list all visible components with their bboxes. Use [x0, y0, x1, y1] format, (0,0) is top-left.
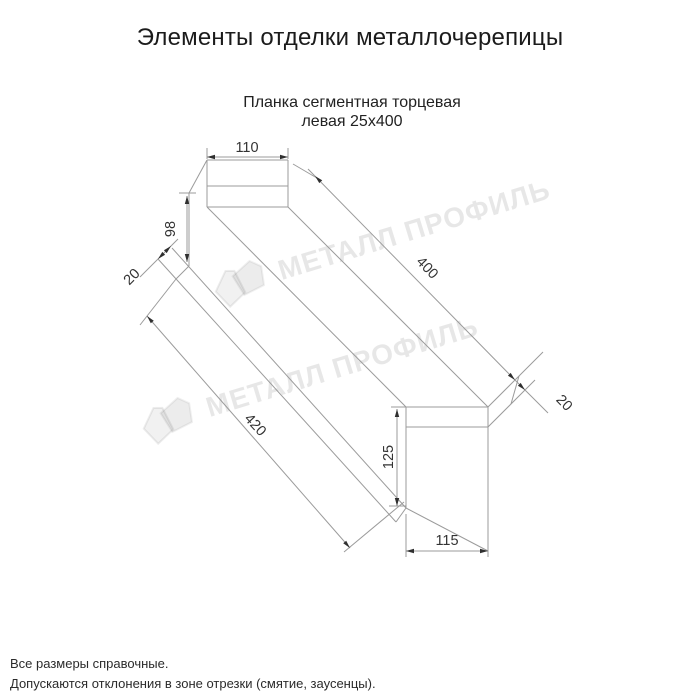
dimension-top-length: 400	[293, 164, 515, 380]
dim-label-top-length: 400	[413, 254, 441, 283]
dim-label-right-end-height: 125	[381, 445, 397, 469]
dimension-bottom-length: 420	[140, 279, 404, 552]
footer-note-2: Допускаются отклонения в зоне отрезки (с…	[10, 676, 376, 691]
dim-label-top-width: 110	[235, 140, 258, 156]
dimension-top-width: 110	[207, 140, 288, 159]
dim-label-left-fold: 20	[121, 266, 144, 289]
footer-note-1: Все размеры справочные.	[10, 656, 168, 671]
dimension-left-end-height: 98	[163, 193, 196, 262]
dimension-left-fold: 20	[121, 239, 178, 289]
dimension-right-fold: 20	[515, 380, 575, 415]
dim-label-bottom-length: 420	[241, 411, 269, 440]
dim-label-right-fold: 20	[553, 392, 576, 415]
dim-label-left-end-height: 98	[163, 221, 179, 237]
dimension-bottom-width: 115	[406, 514, 488, 557]
dimension-right-end-height: 125	[381, 409, 406, 506]
dim-label-bottom-width: 115	[435, 533, 458, 549]
technical-drawing: 110 98 20 400 20 420	[0, 0, 700, 700]
part-outline	[158, 160, 543, 557]
page-root: { "page": { "title": "Элементы отделки м…	[0, 0, 700, 700]
